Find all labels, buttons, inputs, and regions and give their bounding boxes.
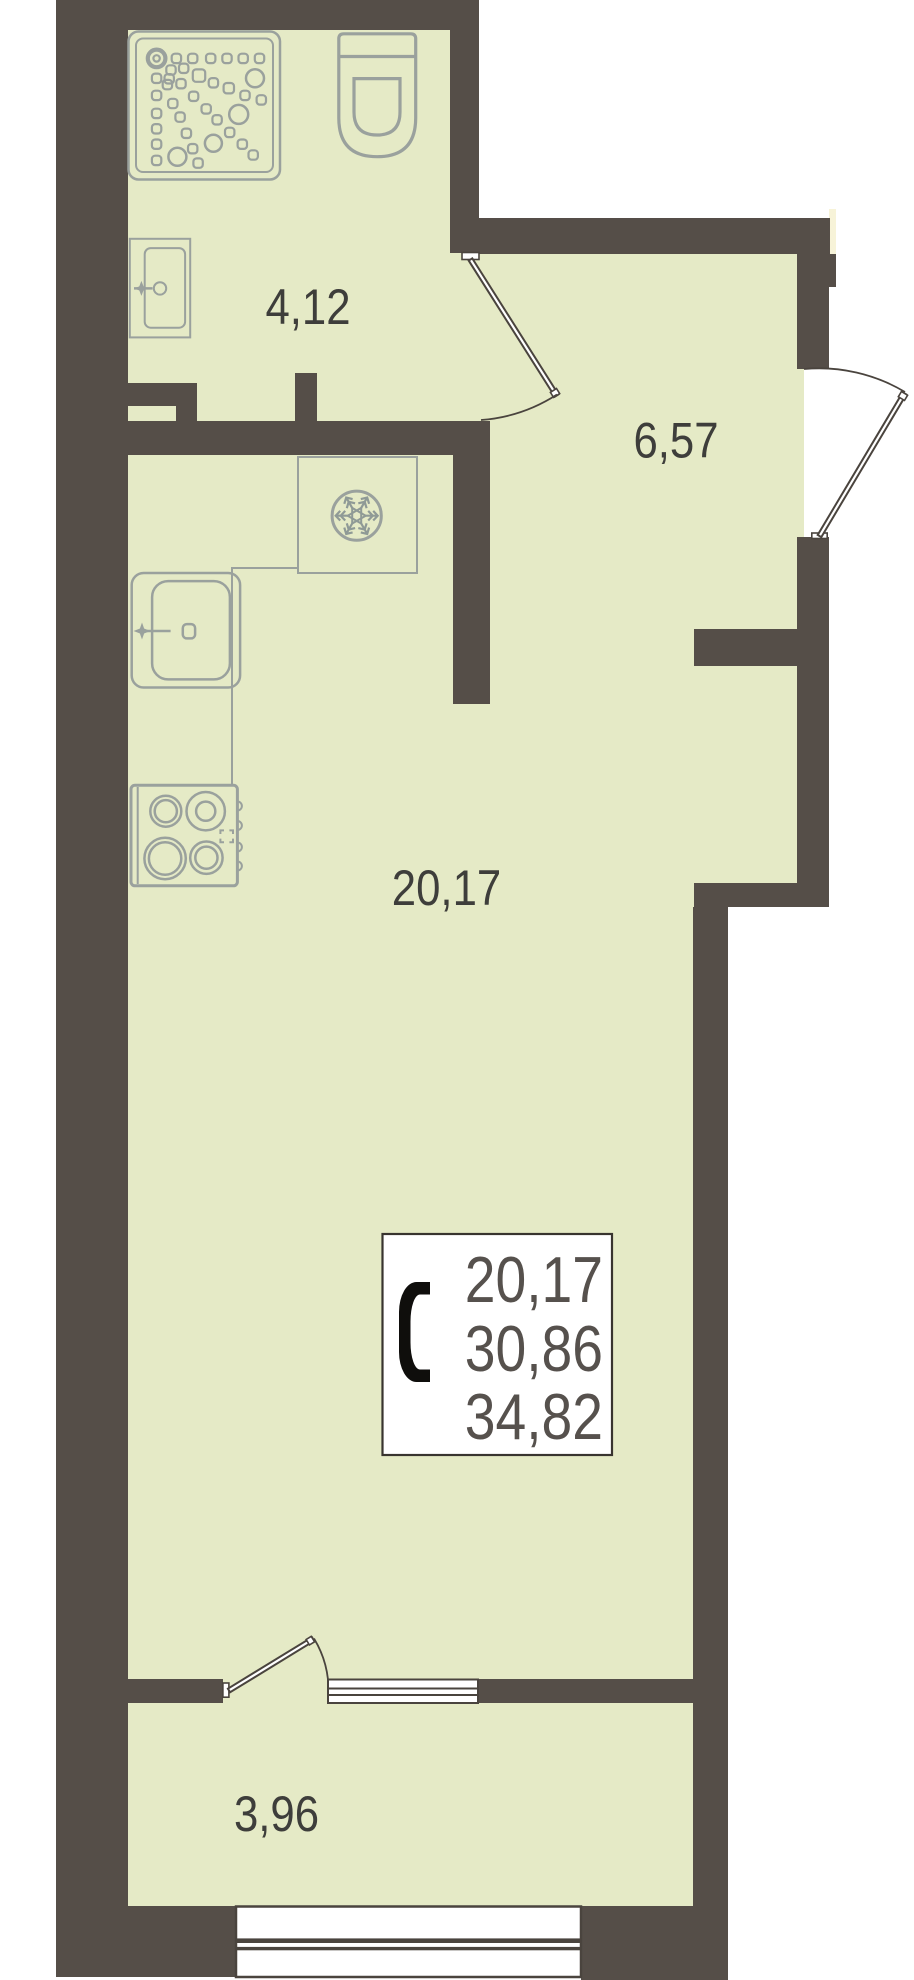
svg-text:6,57: 6,57 xyxy=(633,412,718,468)
svg-text:20,17: 20,17 xyxy=(465,1243,603,1316)
svg-text:3,96: 3,96 xyxy=(234,1785,319,1841)
svg-text:20,17: 20,17 xyxy=(392,859,501,915)
svg-text:30,86: 30,86 xyxy=(465,1312,603,1385)
svg-text:4,12: 4,12 xyxy=(265,278,350,334)
svg-text:34,82: 34,82 xyxy=(465,1380,603,1453)
